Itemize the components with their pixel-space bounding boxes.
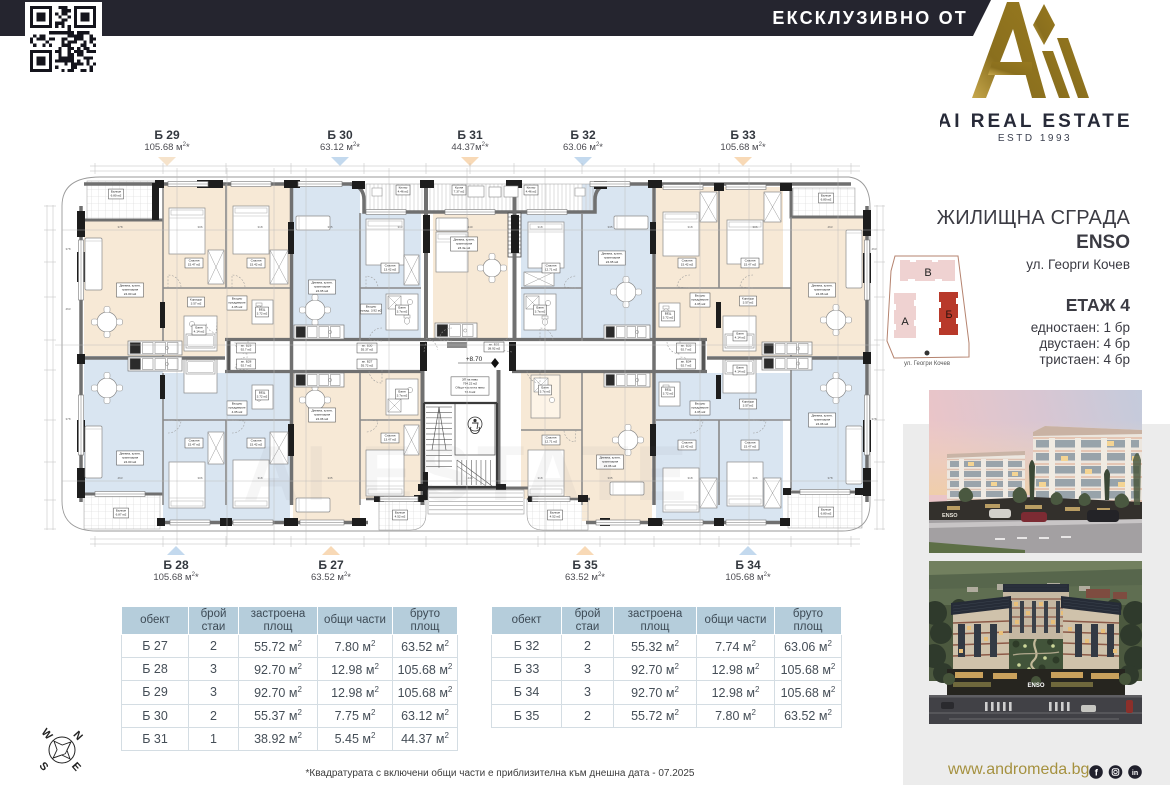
svg-text:306: 306 (197, 476, 202, 480)
svg-text:W: W (39, 726, 55, 742)
svg-text:23.3а м2: 23.3а м2 (458, 246, 471, 250)
svg-text:15.47 м2: 15.47 м2 (188, 443, 201, 447)
svg-text:55.37 м2: 55.37 м2 (361, 348, 374, 352)
svg-text:4.14 м2: 4.14 м2 (194, 330, 205, 334)
svg-text:313: 313 (397, 225, 402, 229)
svg-text:3.72 м2: 3.72 м2 (257, 312, 268, 316)
svg-text:предд. 3.92 м2: предд. 3.92 м2 (360, 309, 381, 313)
svg-text:3.57 м2: 3.57 м2 (743, 301, 754, 305)
svg-text:in: in (1132, 770, 1138, 777)
svg-text:463: 463 (117, 476, 122, 480)
svg-text:463: 463 (827, 225, 832, 229)
svg-text:15.42 м2: 15.42 м2 (250, 263, 263, 267)
svg-text:13.42 м2: 13.42 м2 (384, 268, 397, 272)
svg-text:378: 378 (871, 417, 876, 421)
svg-text:6.80 м2: 6.80 м2 (111, 194, 122, 198)
svg-text:7.37 м2: 7.37 м2 (454, 190, 465, 194)
svg-text:38.92 м2: 38.92 м2 (488, 347, 501, 351)
svg-text:ESTD 1993: ESTD 1993 (998, 133, 1072, 144)
svg-text:3.7а м2: 3.7а м2 (397, 310, 408, 314)
svg-text:24.06 м2: 24.06 м2 (316, 417, 329, 421)
svg-text:24.06 м2: 24.06 м2 (816, 422, 829, 426)
svg-text:N: N (70, 729, 84, 743)
svg-text:3.7а м2: 3.7а м2 (397, 394, 408, 398)
svg-text:318: 318 (537, 225, 542, 229)
svg-text:378: 378 (117, 225, 122, 229)
svg-text:378: 378 (65, 417, 70, 421)
svg-text:24.65 м2: 24.65 м2 (606, 260, 619, 264)
svg-text:55.72 м2: 55.72 м2 (361, 364, 374, 368)
svg-text:6.80 м2: 6.80 м2 (821, 198, 832, 202)
svg-text:306: 306 (752, 225, 757, 229)
svg-text:92.7 м2: 92.7 м2 (241, 364, 252, 368)
svg-text:3.72 м2: 3.72 м2 (663, 392, 674, 396)
svg-text:24.00 м2: 24.00 м2 (124, 292, 137, 296)
svg-text:92.7 м2: 92.7 м2 (681, 348, 692, 352)
svg-text:А: А (901, 316, 909, 328)
svg-text:3.72 м2: 3.72 м2 (663, 316, 674, 320)
svg-text:306: 306 (197, 225, 202, 229)
svg-text:4.05 м2: 4.05 м2 (232, 305, 243, 309)
svg-text:306: 306 (752, 476, 757, 480)
svg-text:335: 335 (607, 225, 612, 229)
svg-text:3.72 м2: 3.72 м2 (257, 395, 268, 399)
svg-text:72.3 м2: 72.3 м2 (465, 390, 476, 394)
svg-text:92.7 м2: 92.7 м2 (241, 348, 252, 352)
svg-text:15.42 м2: 15.42 м2 (681, 263, 694, 267)
svg-text:15.47 м2: 15.47 м2 (744, 445, 757, 449)
svg-text:4.46 м2: 4.46 м2 (526, 190, 537, 194)
svg-text:S: S (37, 760, 51, 773)
svg-text:4.46 м2: 4.46 м2 (398, 190, 409, 194)
svg-text:ENSO: ENSO (942, 513, 958, 519)
svg-text:4.14 м2: 4.14 м2 (735, 370, 746, 374)
svg-text:ул. Геогри Кочев: ул. Геогри Кочев (904, 361, 950, 367)
svg-text:318: 318 (257, 225, 262, 229)
svg-text:3.57 м2: 3.57 м2 (743, 404, 754, 408)
svg-text:12.71 м2: 12.71 м2 (545, 268, 558, 272)
svg-text:ENSO: ENSO (1027, 683, 1044, 689)
svg-text:92.7 м2: 92.7 м2 (681, 364, 692, 368)
svg-text:378: 378 (827, 476, 832, 480)
svg-text:15.47 м2: 15.47 м2 (744, 263, 757, 267)
svg-text:4.14 м2: 4.14 м2 (735, 336, 746, 340)
svg-text:В: В (924, 267, 931, 279)
svg-text:24.06 м2: 24.06 м2 (816, 292, 829, 296)
svg-text:Б: Б (945, 309, 952, 321)
svg-text:6.80 м2: 6.80 м2 (821, 512, 832, 516)
svg-text:+8.70: +8.70 (466, 356, 483, 363)
svg-text:335: 335 (327, 225, 332, 229)
svg-text:3.57 м2: 3.57 м2 (191, 302, 202, 306)
svg-text:4.05 м2: 4.05 м2 (232, 410, 243, 414)
svg-text:AI REAL ESTATE: AI REAL ESTATE (940, 111, 1133, 132)
svg-text:15.47 м2: 15.47 м2 (188, 263, 201, 267)
svg-text:3.7а м2: 3.7а м2 (535, 310, 546, 314)
svg-text:AI ESTATE: AI ESTATE (243, 429, 693, 517)
svg-text:378: 378 (65, 247, 70, 251)
svg-text:6.87 м2: 6.87 м2 (116, 513, 127, 517)
svg-text:318: 318 (687, 225, 692, 229)
svg-text:463: 463 (65, 307, 70, 311)
svg-text:24.65 м2: 24.65 м2 (316, 289, 329, 293)
svg-text:440: 440 (467, 225, 472, 229)
svg-text:24.00 м2: 24.00 м2 (124, 460, 137, 464)
svg-text:463: 463 (871, 247, 876, 251)
svg-text:E: E (69, 760, 83, 773)
